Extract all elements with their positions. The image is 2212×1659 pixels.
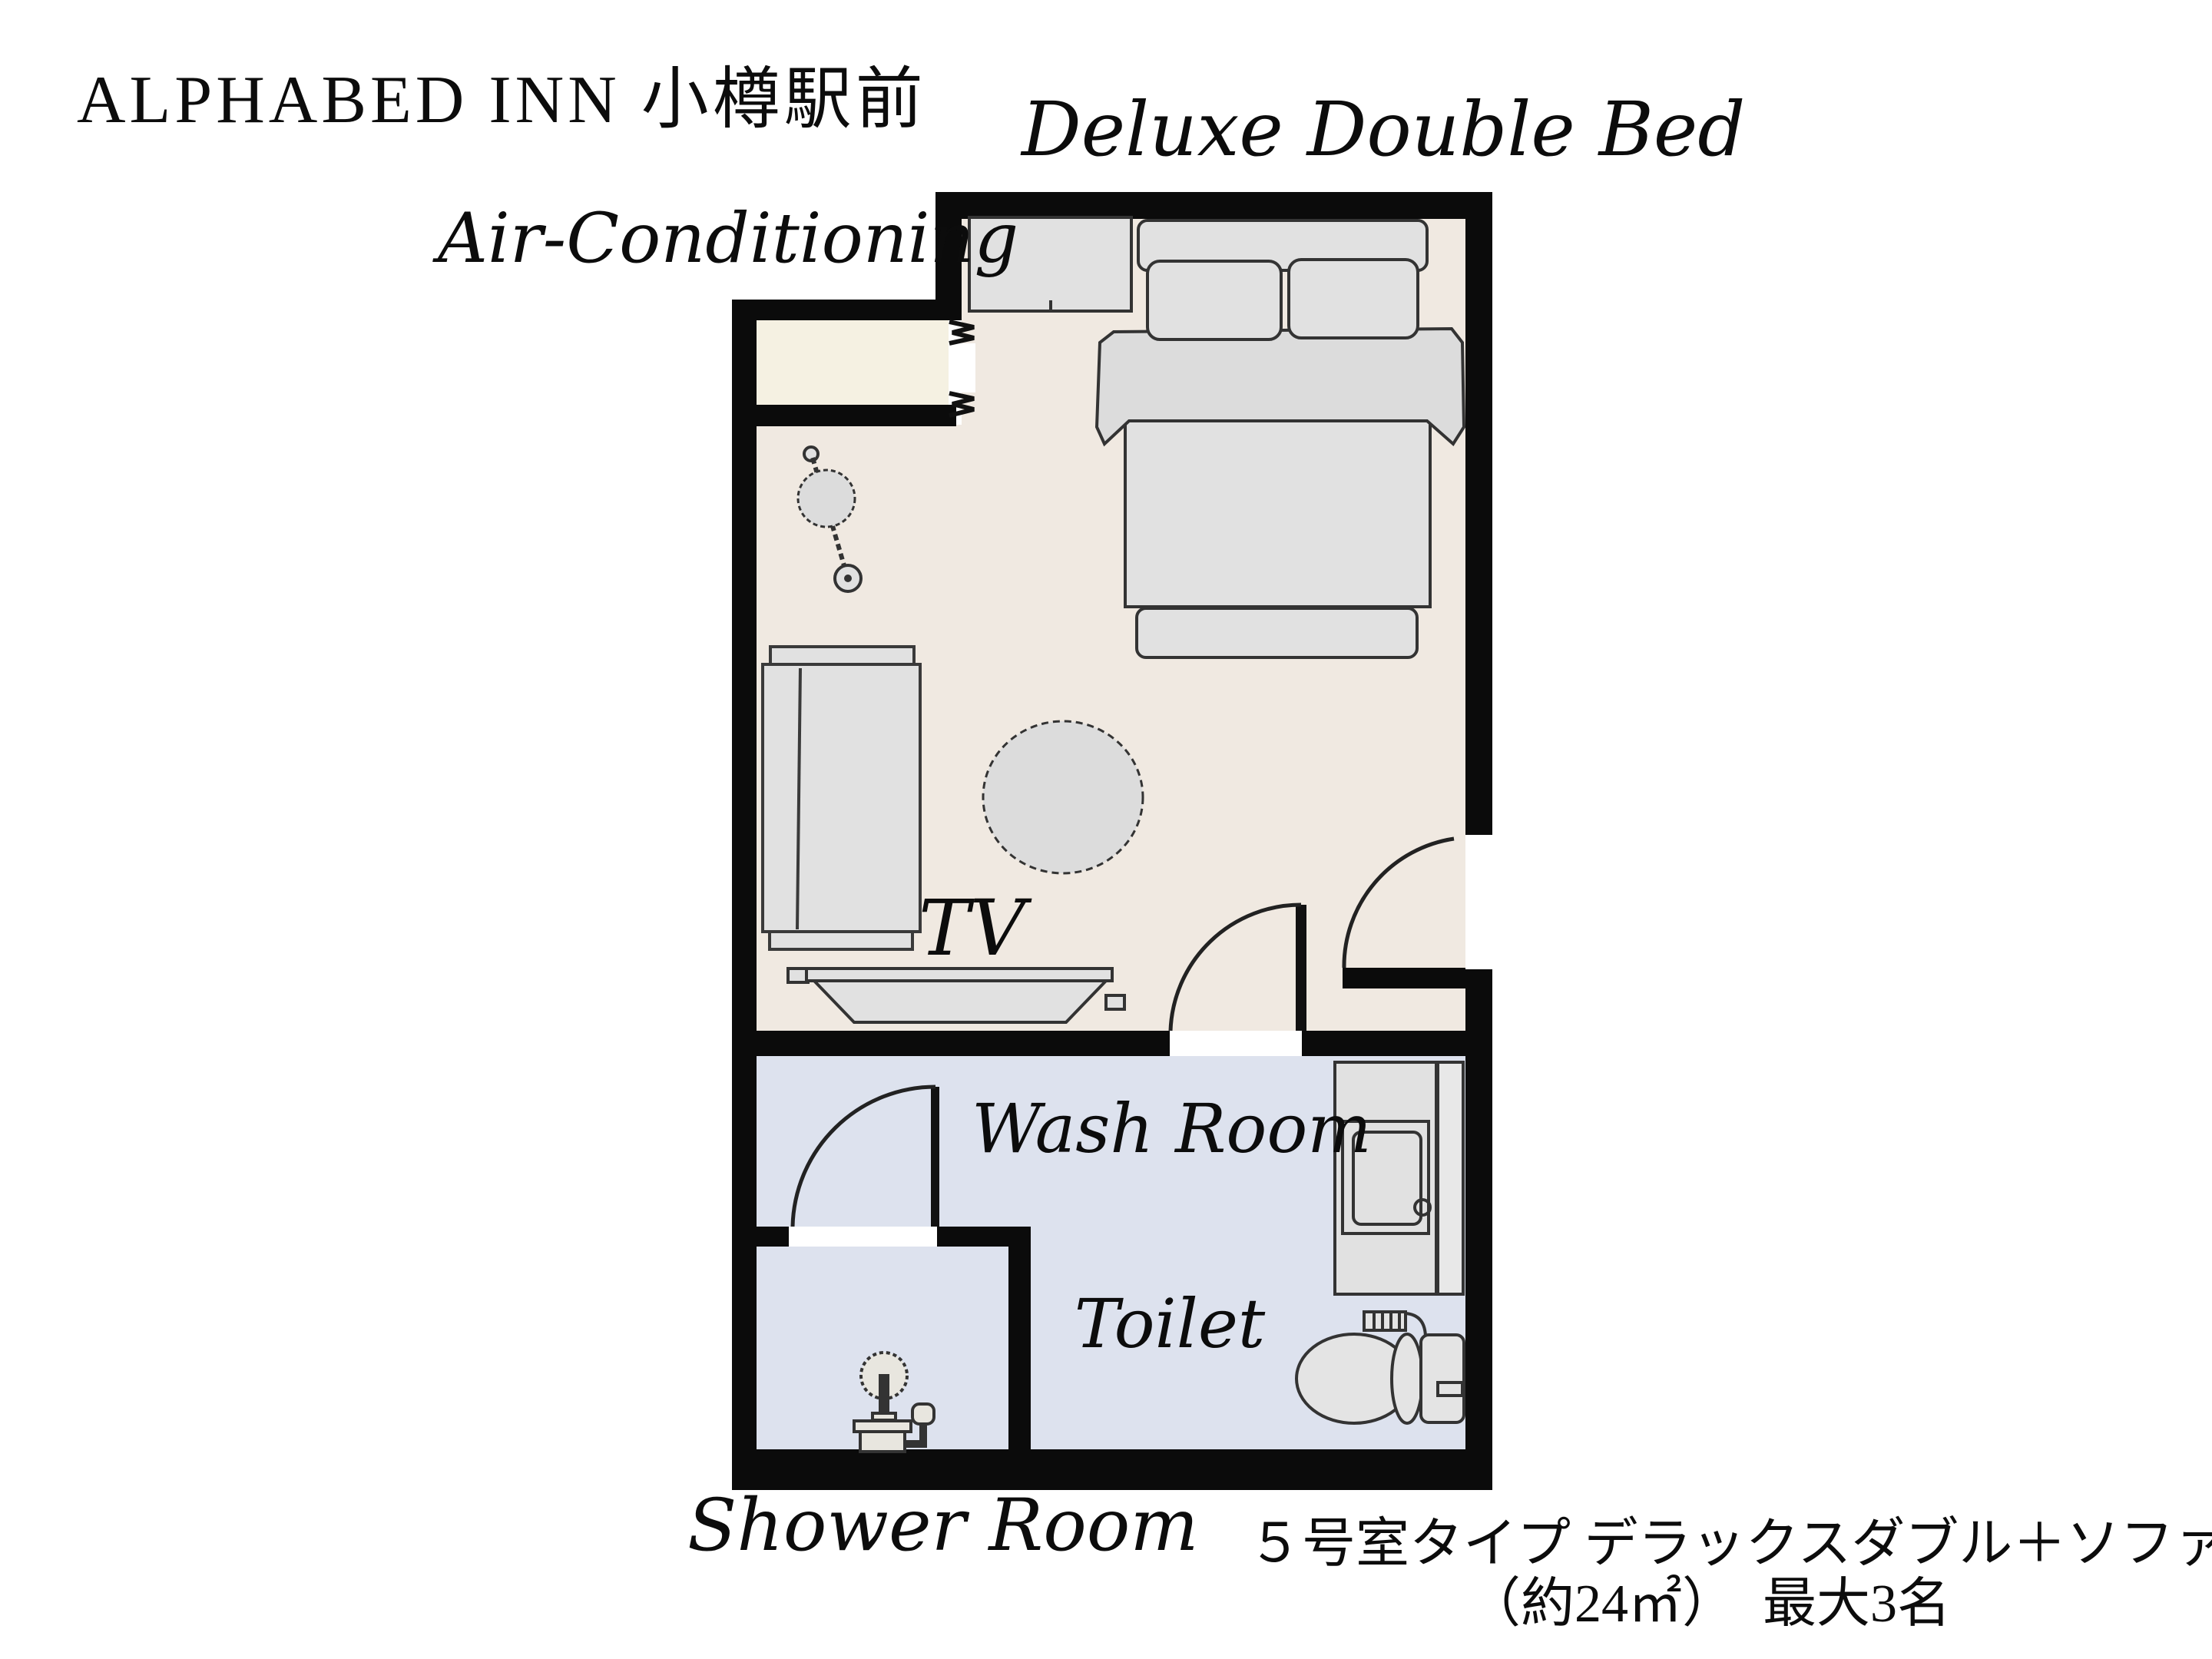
wall-washroom-divider-right xyxy=(1302,1031,1465,1056)
shower-faucet xyxy=(912,1404,934,1424)
page-title: ALPHABED INN 小樽駅前 xyxy=(77,45,927,142)
wall-alcove-bottom xyxy=(732,405,956,426)
bed-type-label: Deluxe Double Bed xyxy=(1022,86,1628,173)
lamp-base-dot xyxy=(844,575,852,582)
shower-door-leaf xyxy=(931,1087,939,1227)
washroom-door-leaf xyxy=(1296,905,1306,1031)
tv-label: TV xyxy=(919,883,1025,973)
toilet-seat xyxy=(1392,1334,1422,1423)
wall-washroom-divider-left xyxy=(757,1031,1170,1056)
air-conditioning-label: Air-Conditioning xyxy=(438,198,937,279)
wall-right-lower xyxy=(1465,969,1492,1490)
sofa-armrest-bottom xyxy=(770,932,912,949)
alcove-door-opening xyxy=(950,343,975,392)
bed-foot-bench xyxy=(1137,608,1417,657)
shower-door-opening xyxy=(789,1227,937,1247)
toilet-tank xyxy=(1421,1335,1464,1422)
washroom-door-opening xyxy=(1170,1031,1302,1056)
wall-right-upper xyxy=(1465,192,1492,835)
floorplan-page: ALPHABED INN 小樽駅前 Deluxe Double Bed Air-… xyxy=(0,0,2212,1659)
wall-alcove-top xyxy=(732,300,962,320)
wall-shower-toilet-divider xyxy=(1008,1227,1031,1449)
bed-pillow-left xyxy=(1147,261,1281,339)
sofa xyxy=(763,647,920,949)
bed-mattress xyxy=(1125,421,1430,607)
room-spec-caption: ５号室タイプ デラックスダブル＋ソファーベッド （約24㎡） 最大3名 xyxy=(1248,1515,2170,1635)
room-spec-line2: （約24㎡） 最大3名 xyxy=(1248,1575,2170,1634)
bed-pillow-right xyxy=(1289,260,1418,338)
shower-base-lip xyxy=(854,1421,911,1432)
sofa-body xyxy=(763,664,920,932)
tv-screen xyxy=(814,981,1106,1022)
washer-side-panel xyxy=(1438,1062,1463,1294)
lamp-shade-icon xyxy=(798,470,855,527)
wall-top xyxy=(935,192,1492,219)
tv-stand-right-cap xyxy=(1106,995,1124,1009)
wall-entry-stub xyxy=(1343,968,1465,988)
toilet-label: Toilet xyxy=(1058,1284,1281,1363)
room-spec-line1: ５号室タイプ デラックスダブル＋ソファーベッド xyxy=(1248,1515,2170,1575)
sofa-armrest-top xyxy=(770,647,914,664)
shower-base-box xyxy=(860,1432,905,1452)
round-rug xyxy=(983,721,1143,873)
entry-alcove-floor xyxy=(757,320,949,405)
wall-shower-divider-left xyxy=(757,1227,789,1247)
shower-room-label: Shower Room xyxy=(687,1484,1125,1568)
shower-pole-flange xyxy=(873,1413,896,1420)
floorplan-drawing xyxy=(0,0,2212,1659)
double-bed xyxy=(1097,220,1464,657)
wall-left xyxy=(732,300,757,1449)
wash-room-label: Wash Room xyxy=(972,1089,1325,1168)
